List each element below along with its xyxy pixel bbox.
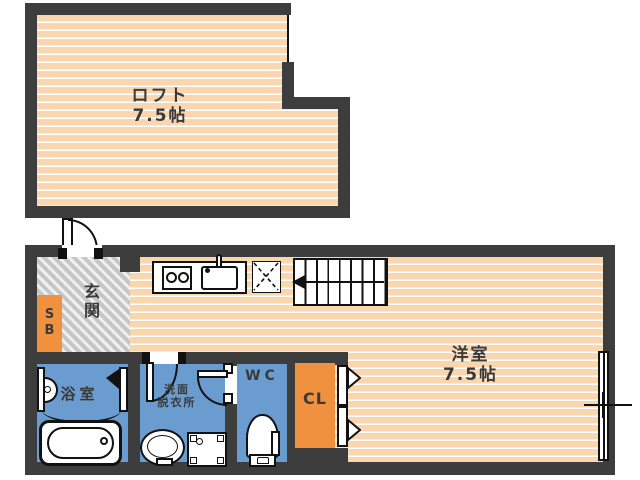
loft-room-label: ロフト 7.5帖 bbox=[108, 86, 212, 130]
stairs-arrow-line bbox=[300, 281, 384, 283]
stairs-arrow-head bbox=[292, 275, 305, 289]
entrance-wall-stub bbox=[120, 257, 140, 272]
toilet-side-tank bbox=[271, 431, 280, 456]
closet-door-triangle-top bbox=[347, 366, 361, 390]
kitchen-faucet bbox=[216, 254, 222, 268]
sink-drain-dot bbox=[205, 268, 210, 273]
entrance-jamb-right bbox=[94, 248, 103, 259]
entrance-label: 玄関 bbox=[78, 283, 102, 321]
loft-notch-cover bbox=[288, 3, 350, 97]
bathroom-label: 浴室 bbox=[52, 385, 107, 403]
bath-door-bar bbox=[119, 367, 128, 412]
loft-room-name: ロフト bbox=[108, 86, 212, 106]
stove-burner-right bbox=[178, 272, 189, 283]
washroom-jamb-right bbox=[178, 352, 186, 364]
loft-wall-left bbox=[25, 3, 37, 218]
entrance-jamb-left bbox=[58, 248, 67, 259]
western-room-name: 洋室 bbox=[418, 345, 523, 365]
washroom-label-line1: 洗面 bbox=[143, 383, 211, 396]
washbasin-tab bbox=[156, 458, 173, 466]
western-room-size: 7.5帖 bbox=[418, 365, 523, 385]
loft-wall-right bbox=[338, 97, 350, 218]
washing-machine-pan bbox=[187, 432, 227, 467]
loft-room-size: 7.5帖 bbox=[108, 106, 212, 126]
bathtub-drain bbox=[100, 437, 108, 445]
closet-bottom-wall bbox=[287, 448, 348, 462]
bath-basin-knob bbox=[44, 386, 51, 393]
pan-corner-bl bbox=[190, 457, 197, 464]
wall-wc-closet bbox=[287, 352, 295, 462]
loft-wall-top bbox=[25, 3, 291, 15]
closet-label: CL bbox=[295, 389, 335, 408]
pan-drain bbox=[196, 438, 203, 445]
washroom-label: 洗面 脱衣所 bbox=[143, 383, 211, 409]
loft-wall-stub bbox=[282, 62, 294, 97]
dashed-x-icon bbox=[253, 262, 279, 291]
window-cross-vertical bbox=[602, 392, 604, 418]
bath-door-triangle bbox=[106, 369, 119, 389]
pan-corner-tr bbox=[217, 435, 224, 442]
loft-wall-bottom bbox=[25, 206, 350, 218]
main-wall-top bbox=[25, 245, 615, 257]
washroom-label-line2: 脱衣所 bbox=[143, 396, 211, 409]
wc-label: WC bbox=[237, 368, 287, 385]
western-room-label: 洋室 7.5帖 bbox=[418, 345, 523, 386]
service-space-box bbox=[252, 261, 281, 293]
toilet-handle bbox=[257, 457, 269, 464]
shoe-box-label: SB bbox=[42, 307, 57, 339]
floorplan-canvas: ロフト 7.5帖 bbox=[0, 0, 640, 480]
pan-corner-br bbox=[217, 457, 224, 464]
wall-bath-washroom bbox=[128, 352, 140, 462]
loft-open-edge-line bbox=[287, 15, 289, 62]
loft-wall-mid bbox=[282, 97, 350, 109]
closet-door-triangle-bottom bbox=[347, 418, 361, 442]
window-cross-horizontal bbox=[584, 404, 632, 406]
washbasin-inner bbox=[147, 435, 178, 458]
stove-burner-left bbox=[166, 272, 177, 283]
